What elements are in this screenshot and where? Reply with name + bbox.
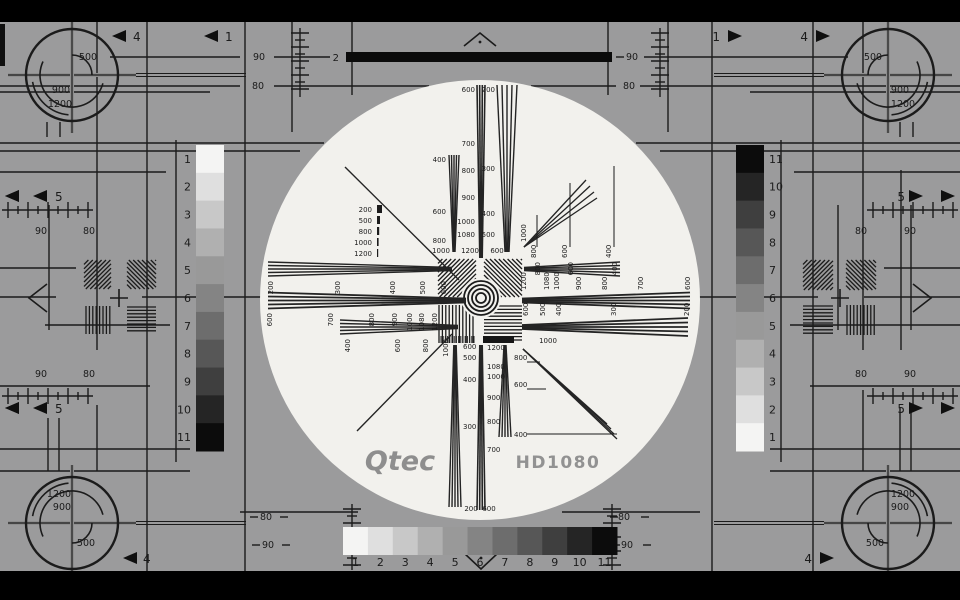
arrow-label: 5 xyxy=(55,402,63,416)
wedge-label: 300 xyxy=(463,423,476,431)
grayscale-step xyxy=(196,423,224,451)
scanline-label: 80 xyxy=(855,226,867,237)
wedge-label: 900 xyxy=(391,313,399,326)
wedge-label: 600 xyxy=(522,303,530,316)
wedge-label: 800 xyxy=(368,313,376,326)
corner-frequency-label: 500 xyxy=(77,538,95,549)
grayscale-step-label: 11 xyxy=(177,431,191,444)
wedge-label: 600 xyxy=(490,247,503,255)
grayscale-step xyxy=(567,527,592,555)
grayscale-step xyxy=(736,423,764,451)
logo-text: Qtec xyxy=(365,446,435,477)
grayscale-step xyxy=(443,527,468,555)
wedge-label: 1200 xyxy=(487,344,505,352)
center-reference-bar xyxy=(483,336,514,343)
wedge-label: 1000 xyxy=(432,247,450,255)
arrow-label: 4 xyxy=(143,552,151,566)
scanline-label: 90 xyxy=(253,52,265,63)
wedge-label: 300 xyxy=(610,303,618,316)
wedge-label: 600 xyxy=(684,277,692,290)
corner-frequency-label: 900 xyxy=(891,502,909,513)
grayscale-step-label: 9 xyxy=(769,209,776,222)
grayscale-step xyxy=(196,312,224,340)
wedge-label: 500 xyxy=(419,281,427,294)
grayscale-step xyxy=(196,368,224,396)
wedge-label: 400 xyxy=(344,339,352,352)
wedge-label: 600 xyxy=(567,262,575,275)
grayscale-step-label: 5 xyxy=(452,556,459,569)
grayscale-step-label: 2 xyxy=(184,181,191,194)
corner-frequency-label: 1200 xyxy=(47,489,71,500)
grayscale-step xyxy=(736,340,764,368)
legend-label: 1000 xyxy=(354,239,372,247)
scanline-label: 90 xyxy=(904,369,916,380)
wedge-label: 400 xyxy=(611,262,619,275)
grayscale-step-label: 5 xyxy=(184,264,191,277)
wedge-label: 700 xyxy=(637,277,645,290)
corner-frequency-label: 500 xyxy=(866,538,884,549)
scanline-label: 90 xyxy=(621,540,633,551)
wedge-label: 600 xyxy=(463,343,476,351)
scanline-label: 80 xyxy=(83,369,95,380)
wedge-label: 600 xyxy=(433,208,446,216)
wedge-label: 800 xyxy=(462,167,475,175)
wedge-label: 600 xyxy=(482,505,495,513)
grayscale-step-label: 7 xyxy=(184,320,191,333)
grayscale-step xyxy=(368,527,393,555)
wedge-label: 400 xyxy=(514,431,527,439)
wedge-label: 500 xyxy=(539,303,547,316)
grayscale-step-label: 7 xyxy=(501,556,508,569)
scanline-label: 80 xyxy=(83,226,95,237)
wedge-label: 200 xyxy=(482,86,495,94)
grayscale-step-label: 10 xyxy=(177,403,191,416)
corner-frequency-label: 1200 xyxy=(891,489,915,500)
grayscale-step xyxy=(736,145,764,173)
wedge-label: 700 xyxy=(487,446,500,454)
grayscale-step-label: 3 xyxy=(402,556,409,569)
grayscale-step xyxy=(736,395,764,423)
grayscale-step xyxy=(736,312,764,340)
wedge-label: 700 xyxy=(327,313,335,326)
legend-label: 200 xyxy=(359,206,372,214)
scanline-label: 80 xyxy=(252,81,264,92)
wedge-label: 800 xyxy=(514,354,527,362)
scanline-label: 90 xyxy=(904,226,916,237)
wedge-label: 300 xyxy=(482,165,495,173)
grayscale-step xyxy=(393,527,418,555)
grayscale-step-label: 1 xyxy=(184,153,191,166)
legend-mark xyxy=(377,238,379,246)
grayscale-step xyxy=(196,395,224,423)
wedge-label: 1000 xyxy=(539,337,557,345)
grayscale-step-label: 9 xyxy=(184,375,191,388)
grayscale-step-label: 11 xyxy=(769,153,783,166)
scanline-label: 90 xyxy=(262,540,274,551)
grayscale-step xyxy=(517,527,542,555)
scanline-label: 80 xyxy=(623,81,635,92)
scanline-label: 80 xyxy=(618,512,630,523)
wedge-label: 900 xyxy=(462,194,475,202)
wedge-label: 400 xyxy=(605,245,613,258)
corner-frequency-label: 500 xyxy=(864,52,882,63)
grayscale-step xyxy=(736,256,764,284)
arrow-label: 4 xyxy=(804,552,812,566)
corner-frequency-label: 900 xyxy=(52,85,70,96)
grayscale-step xyxy=(492,527,517,555)
wedge-label: 600 xyxy=(394,339,402,352)
wedge-label: 600 xyxy=(440,281,448,294)
wedge-label: 800 xyxy=(534,262,542,275)
legend-mark xyxy=(377,216,380,224)
legend-mark xyxy=(377,227,379,235)
wedge-label: 900 xyxy=(575,277,583,290)
grayscale-step-label: 2 xyxy=(377,556,384,569)
wedge-label: 600 xyxy=(266,313,274,326)
arrow-label: 1 xyxy=(712,30,720,44)
wedge-label: 1000 xyxy=(520,224,528,242)
grayscale-step-label: 9 xyxy=(551,556,558,569)
wedge-label: 400 xyxy=(433,156,446,164)
model-text: HD1080 xyxy=(516,453,601,473)
grayscale-step xyxy=(418,527,443,555)
hatch-line xyxy=(521,259,522,260)
bullseye-ring xyxy=(461,278,501,318)
wedge-label: 200 xyxy=(464,505,477,513)
wedge-label: 1000 xyxy=(457,218,475,226)
wedge-label: 1080 xyxy=(457,231,475,239)
wedge-label: 1000 xyxy=(553,272,561,290)
legend-label: 1200 xyxy=(354,250,372,258)
legend-label: 800 xyxy=(359,228,372,236)
grayscale-step xyxy=(196,145,224,173)
scanline-label: 90 xyxy=(35,226,47,237)
grayscale-step-label: 6 xyxy=(184,292,191,305)
top-reference-bar xyxy=(346,52,612,62)
wedge-label: 1080 xyxy=(543,272,551,290)
grayscale-step-label: 10 xyxy=(573,556,587,569)
grayscale-step-label: 3 xyxy=(769,375,776,388)
corner-frequency-label: 1200 xyxy=(891,99,915,110)
grayscale-step-label: 10 xyxy=(769,181,783,194)
wedge-label: 200 xyxy=(267,281,275,294)
grayscale-step xyxy=(196,284,224,312)
grayscale-step-label: 2 xyxy=(769,403,776,416)
wedge-label: 800 xyxy=(433,237,446,245)
wedge-label: 1080 xyxy=(418,313,426,331)
grayscale-step xyxy=(196,256,224,284)
grayscale-step-label: 11 xyxy=(598,556,612,569)
wedge-label: 900 xyxy=(487,394,500,402)
wedge-label: 400 xyxy=(482,210,495,218)
grayscale-step-label: 6 xyxy=(477,556,484,569)
grayscale-step xyxy=(196,228,224,256)
grayscale-step-label: 5 xyxy=(769,320,776,333)
test-pattern-screen: 5009001200500900120012009005001200900500… xyxy=(0,0,960,600)
grayscale-step xyxy=(736,284,764,312)
wedge-label: 800 xyxy=(487,418,500,426)
grayscale-step-label: 1 xyxy=(769,431,776,444)
wedge-label: 500 xyxy=(482,231,495,239)
grayscale-step xyxy=(736,368,764,396)
grayscale-step-label: 3 xyxy=(184,209,191,222)
wedge-label: 1080 xyxy=(487,363,505,371)
wedge-label: 1000 xyxy=(487,373,505,381)
wedge-label: 1200 xyxy=(461,247,479,255)
scanline-label: 80 xyxy=(260,512,272,523)
edge-mark xyxy=(0,24,5,66)
top-bar-label: 2 xyxy=(333,53,339,64)
arrow-label: 5 xyxy=(55,190,63,204)
grayscale-step-label: 1 xyxy=(352,556,359,569)
grayscale-step-label: 8 xyxy=(184,348,191,361)
arrow-label: 5 xyxy=(897,402,905,416)
test-pattern: 5009001200500900120012009005001200900500… xyxy=(0,0,960,600)
arrow-label: 1 xyxy=(225,30,233,44)
wedge-label: 400 xyxy=(555,303,563,316)
corner-frequency-label: 900 xyxy=(891,85,909,96)
grayscale-step-label: 6 xyxy=(769,292,776,305)
top-chevron-dot xyxy=(479,41,482,44)
wedge-label: 1200 xyxy=(431,313,439,331)
wedge-label: 200 xyxy=(683,303,691,316)
wedge-line xyxy=(480,345,481,510)
grayscale-step xyxy=(592,527,617,555)
corner-frequency-label: 500 xyxy=(79,52,97,63)
grayscale-step xyxy=(542,527,567,555)
hatch-line xyxy=(155,260,156,261)
corner-frequency-label: 1200 xyxy=(48,99,72,110)
legend-mark xyxy=(377,205,382,213)
legend-mark xyxy=(377,249,378,257)
grayscale-step xyxy=(343,527,368,555)
arrow-label: 4 xyxy=(133,30,141,44)
wedge-label: 1000 xyxy=(406,313,414,331)
scanline-label: 80 xyxy=(855,369,867,380)
legend-label: 500 xyxy=(359,217,372,225)
wedge-label: 600 xyxy=(561,245,569,258)
grayscale-step-label: 8 xyxy=(769,236,776,249)
grayscale-step-label: 7 xyxy=(769,264,776,277)
wedge-line xyxy=(480,85,481,258)
grayscale-step xyxy=(468,527,493,555)
wedge-label: 700 xyxy=(462,140,475,148)
wedge-label: 1200 xyxy=(520,272,528,290)
arrow-label: 4 xyxy=(800,30,808,44)
wedge-label: 800 xyxy=(601,277,609,290)
grayscale-step-label: 4 xyxy=(184,236,191,249)
wedge-label: 600 xyxy=(462,86,475,94)
grayscale-step xyxy=(196,173,224,201)
wedge-label: 500 xyxy=(463,354,476,362)
arrow-label: 5 xyxy=(897,190,905,204)
grayscale-step xyxy=(736,201,764,229)
scanline-label: 90 xyxy=(626,52,638,63)
scanline-label: 90 xyxy=(35,369,47,380)
grayscale-step xyxy=(736,228,764,256)
grayscale-step-label: 8 xyxy=(526,556,533,569)
wedge-label: 300 xyxy=(334,281,342,294)
wedge-label: 400 xyxy=(389,281,397,294)
grayscale-step-label: 4 xyxy=(769,348,776,361)
wedge-label: 600 xyxy=(514,381,527,389)
grayscale-step xyxy=(736,173,764,201)
corner-frequency-label: 900 xyxy=(53,502,71,513)
grayscale-step xyxy=(196,201,224,229)
wedge-label: 800 xyxy=(422,339,430,352)
wedge-label: 400 xyxy=(463,376,476,384)
grayscale-step-label: 4 xyxy=(427,556,434,569)
grayscale-step xyxy=(196,340,224,368)
